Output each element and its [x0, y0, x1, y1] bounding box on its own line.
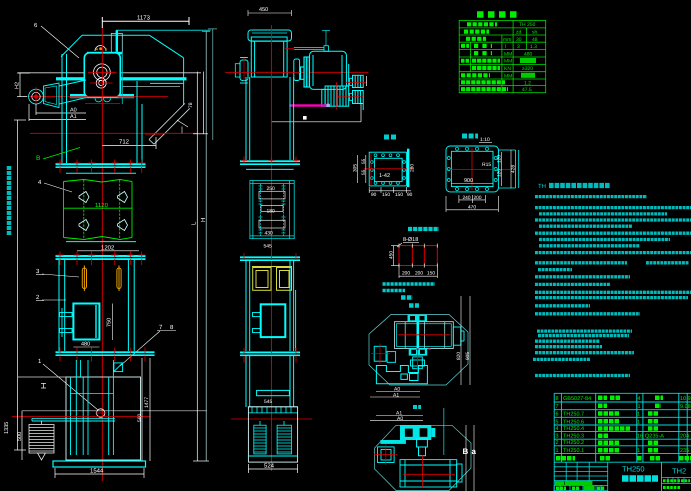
svg-text:R15: R15 — [482, 162, 491, 168]
svg-text:Q235-A: Q235-A — [645, 434, 664, 440]
svg-text:560: 560 — [137, 413, 143, 422]
svg-text:905: 905 — [465, 352, 471, 360]
svg-text:1544: 1544 — [90, 468, 104, 475]
svg-text:sh: sh — [532, 30, 538, 36]
svg-text:480: 480 — [524, 51, 533, 57]
svg-text:l: l — [505, 44, 506, 50]
svg-text:1: 1 — [556, 448, 559, 454]
svg-text:TH250.1: TH250.1 — [563, 448, 584, 454]
svg-text:1: 1 — [637, 419, 640, 425]
svg-text:TH250.2: TH250.2 — [563, 440, 584, 446]
svg-text:428: 428 — [511, 165, 517, 173]
svg-text:90: 90 — [371, 192, 377, 198]
svg-text:A1: A1 — [393, 392, 399, 398]
svg-text:280: 280 — [410, 164, 416, 172]
svg-text:TH250.3: TH250.3 — [563, 434, 584, 440]
svg-text:150: 150 — [382, 192, 390, 198]
svg-text:712: 712 — [119, 139, 130, 146]
svg-text:TH250: TH250 — [622, 465, 645, 474]
svg-text:GB5027-84: GB5027-84 — [563, 396, 591, 402]
svg-text:7: 7 — [556, 404, 559, 410]
svg-text:30: 30 — [516, 37, 522, 43]
svg-text:450: 450 — [389, 251, 395, 259]
svg-text:1.3: 1.3 — [530, 44, 537, 50]
svg-text:MM: MM — [504, 73, 512, 79]
svg-text:≥320: ≥320 — [522, 66, 533, 72]
svg-text:545: 545 — [264, 244, 273, 250]
svg-text:480: 480 — [81, 342, 90, 348]
svg-text:3: 3 — [517, 44, 520, 50]
svg-text:55: 55 — [361, 169, 367, 175]
svg-text:zd: zd — [516, 30, 522, 36]
svg-text:5: 5 — [556, 419, 559, 425]
svg-text:305: 305 — [353, 164, 359, 172]
svg-text:MM: MM — [504, 51, 512, 57]
svg-text:1173: 1173 — [137, 15, 151, 22]
svg-text:524: 524 — [264, 463, 275, 470]
svg-text:900: 900 — [464, 178, 473, 184]
svg-text:4: 4 — [638, 396, 641, 402]
svg-text:B: B — [463, 447, 469, 456]
svg-text:1: 1 — [637, 412, 640, 418]
svg-text:9.08: 9.08 — [680, 404, 691, 410]
svg-text:450: 450 — [259, 7, 268, 13]
svg-text:1120: 1120 — [95, 202, 109, 209]
svg-text:235: 235 — [680, 448, 689, 454]
svg-text:150: 150 — [427, 271, 435, 277]
svg-text:A0: A0 — [397, 416, 403, 422]
svg-text:KN: KN — [504, 66, 511, 72]
svg-text:545: 545 — [264, 399, 273, 405]
svg-text:204: 204 — [680, 434, 689, 440]
svg-text:150: 150 — [395, 192, 403, 198]
svg-text:200: 200 — [415, 271, 423, 277]
svg-text:1477: 1477 — [144, 397, 150, 408]
svg-text:A1: A1 — [70, 114, 77, 120]
svg-text:TH: TH — [538, 183, 546, 190]
svg-text:H2: H2 — [15, 82, 21, 89]
svg-text:1335: 1335 — [4, 422, 10, 434]
svg-text:3: 3 — [556, 434, 559, 440]
svg-text:TH 250: TH 250 — [519, 22, 536, 28]
svg-text:TH250.4: TH250.4 — [563, 426, 584, 432]
svg-text:mm: mm — [503, 37, 511, 43]
svg-text:4: 4 — [556, 426, 559, 432]
svg-text:B: B — [36, 155, 40, 162]
svg-text:1: 1 — [637, 448, 640, 454]
svg-text:TH250.7: TH250.7 — [563, 412, 584, 418]
svg-text:A0: A0 — [70, 108, 77, 114]
svg-text:6: 6 — [556, 412, 559, 418]
svg-text:78: 78 — [188, 102, 194, 108]
svg-text:TH2: TH2 — [672, 467, 686, 476]
svg-text:430: 430 — [265, 231, 274, 237]
svg-text:TH250.6: TH250.6 — [563, 419, 584, 425]
svg-text:250: 250 — [267, 186, 276, 192]
svg-text:1-42: 1-42 — [379, 173, 390, 179]
svg-text:48: 48 — [532, 37, 538, 43]
svg-text:10.9: 10.9 — [680, 396, 691, 402]
svg-text:8: 8 — [556, 396, 559, 402]
svg-text:820: 820 — [456, 352, 462, 360]
svg-text:2: 2 — [556, 440, 559, 446]
svg-text:1: 1 — [638, 404, 641, 410]
svg-text:H: H — [200, 218, 207, 222]
svg-text:200: 200 — [402, 271, 410, 277]
svg-text:750: 750 — [107, 318, 113, 327]
svg-text:a: a — [472, 447, 477, 456]
svg-text:47.5: 47.5 — [522, 87, 532, 93]
svg-text:MM: MM — [504, 59, 512, 65]
svg-text:500: 500 — [17, 432, 23, 441]
svg-text:180: 180 — [267, 209, 276, 215]
svg-text:8-Ø18: 8-Ø18 — [403, 237, 418, 243]
svg-text:55: 55 — [361, 158, 367, 164]
svg-text:16: 16 — [637, 434, 643, 440]
svg-text:90: 90 — [407, 192, 413, 198]
svg-text:1.2: 1.2 — [524, 80, 531, 86]
